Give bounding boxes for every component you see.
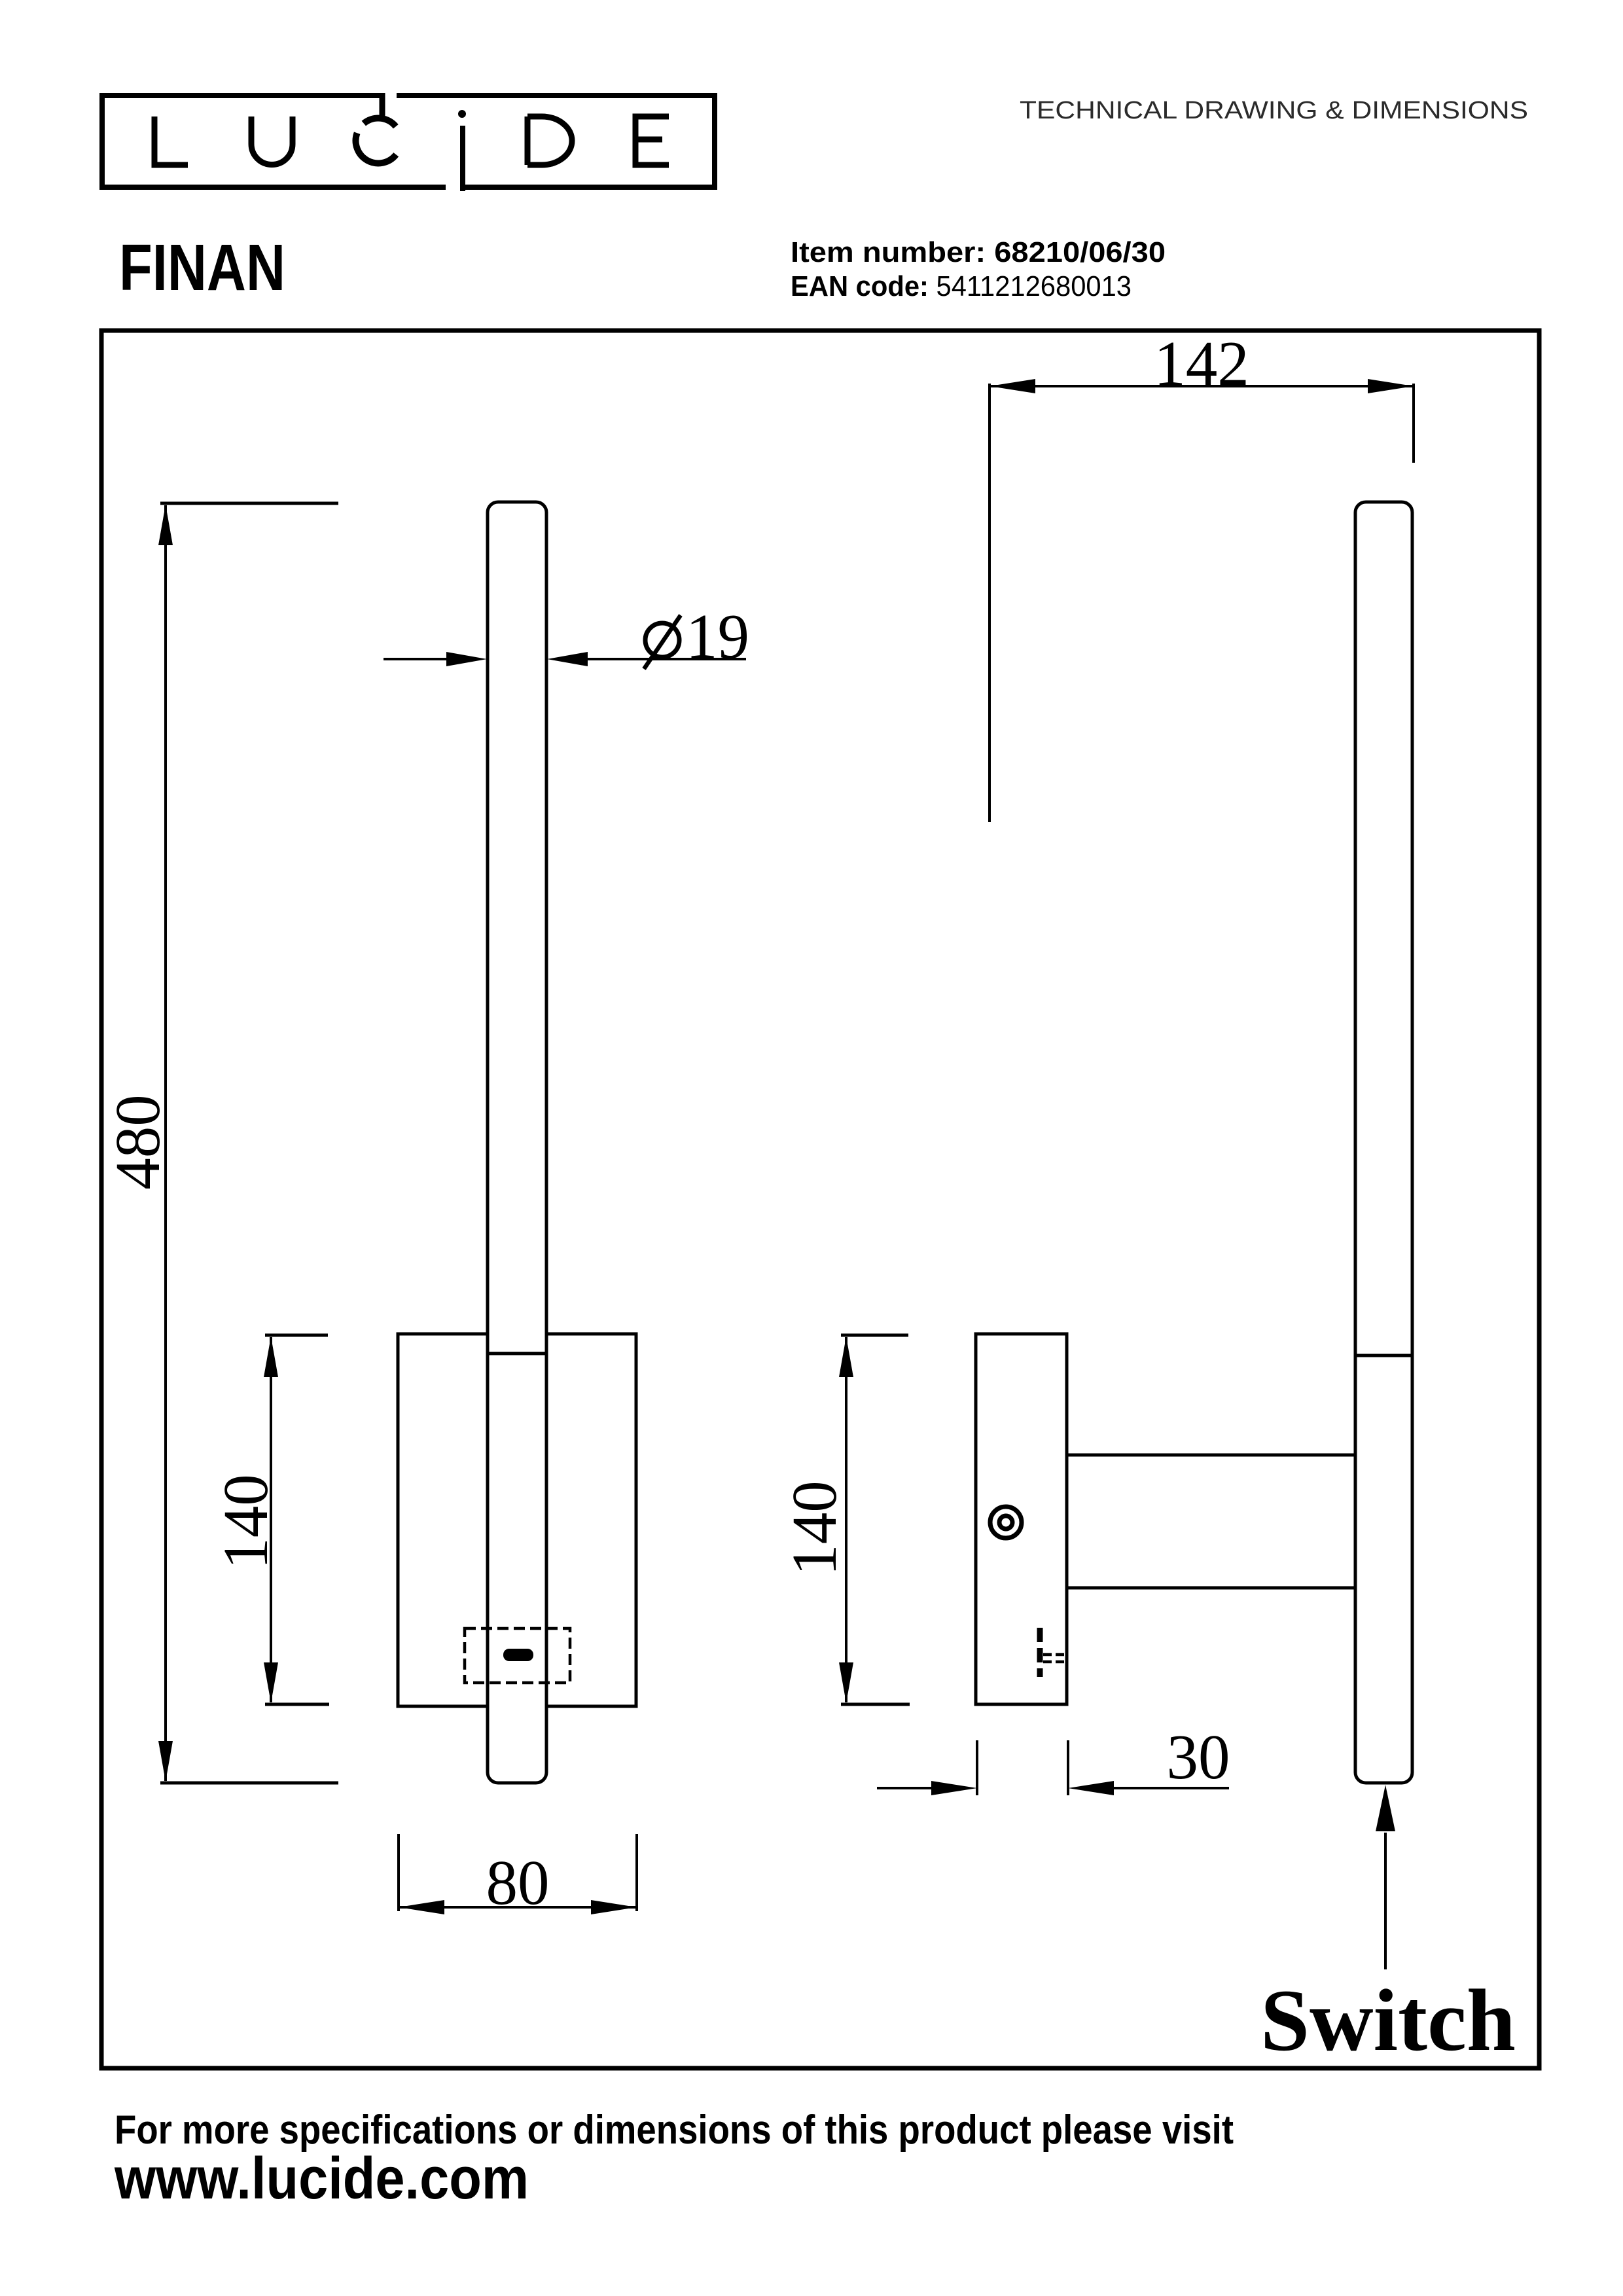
svg-text:142: 142 [1154, 329, 1249, 399]
svg-text:140: 140 [779, 1480, 849, 1576]
svg-text:FINAN: FINAN [119, 231, 285, 304]
svg-text:www.lucide.com: www.lucide.com [114, 2146, 529, 2212]
svg-text:80: 80 [486, 1848, 550, 1918]
svg-text:EAN code: 5411212680013: EAN code: 5411212680013 [791, 270, 1132, 302]
svg-text:140: 140 [211, 1474, 281, 1570]
svg-text:30: 30 [1167, 1722, 1230, 1792]
svg-text:TECHNICAL DRAWING & DIMENSIONS: TECHNICAL DRAWING & DIMENSIONS [1020, 97, 1528, 124]
svg-text:Switch: Switch [1260, 1972, 1516, 2070]
svg-text:Item number: 68210/06/30: Item number: 68210/06/30 [791, 236, 1166, 268]
svg-text:480: 480 [103, 1094, 173, 1190]
svg-text:19: 19 [686, 601, 749, 672]
